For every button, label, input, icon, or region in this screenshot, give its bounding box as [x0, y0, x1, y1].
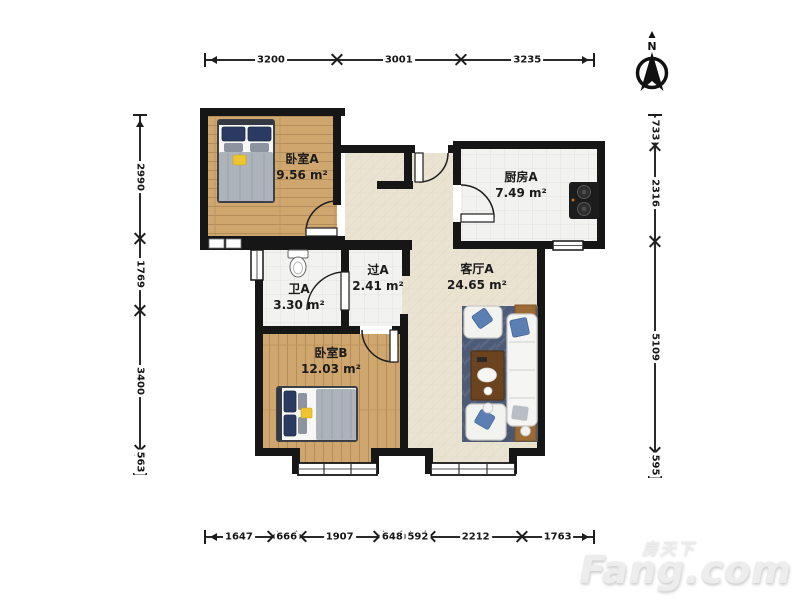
- wall: [255, 326, 360, 334]
- room-label-bedroom-b: 卧室B 12.03 m²: [301, 345, 361, 377]
- room-name: 卧室B: [301, 345, 361, 361]
- dim-arrow: [582, 56, 593, 64]
- dimension-left: 299017693400563: [131, 115, 149, 474]
- wall: [400, 314, 408, 456]
- room-name: 过A: [352, 262, 404, 278]
- window-bedroom-b-bay: [298, 463, 377, 475]
- wall: [377, 181, 413, 189]
- dim-label: 1763: [542, 531, 574, 542]
- wall: [341, 310, 349, 326]
- wall: [200, 108, 208, 250]
- dim-label: 592: [405, 531, 430, 542]
- wall: [333, 108, 341, 205]
- wall: [537, 241, 545, 456]
- room-area: 24.65 m²: [447, 277, 507, 293]
- window-bath: [251, 250, 263, 280]
- fang-logo: Fang.com: [580, 550, 792, 590]
- floorplan-svg: N: [0, 0, 800, 600]
- dim-label: 3400: [134, 365, 145, 397]
- dim-label: 666: [274, 531, 299, 542]
- north-label: N: [647, 40, 656, 53]
- wall: [341, 240, 412, 250]
- dimension-right: 73323165109595: [646, 115, 664, 477]
- wall: [583, 241, 605, 249]
- room-area: 12.03 m²: [301, 361, 361, 377]
- dim-label: 3235: [511, 54, 543, 65]
- dim-arrow: [206, 56, 217, 64]
- stove: [569, 182, 599, 219]
- wall: [453, 149, 461, 185]
- wall: [341, 250, 349, 274]
- bed-a: [218, 120, 274, 202]
- wall: [341, 145, 415, 153]
- wall: [200, 108, 345, 116]
- room-label-hall-a: 过A 2.41 m²: [352, 262, 404, 294]
- dim-label: 2212: [460, 531, 492, 542]
- dimension-bottom: 1647666190764859222121763: [205, 528, 594, 546]
- dim-line: [654, 115, 656, 477]
- sofa-set: [462, 305, 538, 442]
- dim-label: 3200: [255, 54, 287, 65]
- dim-endbar: [593, 53, 595, 67]
- room-area: 2.41 m²: [352, 278, 404, 294]
- floorplan-canvas: N 卧室A 9.56 m² 厨房A 7.49 m² 过A 2.41 m² 卫A …: [0, 0, 800, 600]
- dim-label: 1907: [324, 531, 356, 542]
- room-area: 7.49 m²: [495, 185, 547, 201]
- dim-arrow: [136, 116, 144, 127]
- room-name: 卫A: [273, 281, 325, 297]
- dim-label: 1647: [223, 531, 255, 542]
- floor-entry: [345, 153, 453, 242]
- window-living-bay: [431, 463, 515, 475]
- dim-label: 648: [380, 531, 405, 542]
- room-label-bath-a: 卫A 3.30 m²: [273, 281, 325, 313]
- wall: [453, 141, 605, 149]
- north-compass: N: [638, 31, 667, 91]
- room-area: 3.30 m²: [273, 297, 325, 313]
- dim-label: 1769: [134, 259, 145, 291]
- room-area: 9.56 m²: [276, 167, 328, 183]
- fang-watermark: 房天下 Fang.com: [580, 535, 792, 590]
- dim-label: 2990: [134, 161, 145, 193]
- room-name: 客厅A: [447, 261, 507, 277]
- bed-b: [277, 387, 357, 441]
- window-kitchen: [553, 241, 583, 250]
- toilet: [288, 250, 308, 277]
- dim-label: 2316: [649, 177, 660, 209]
- dim-arrow: [206, 533, 217, 541]
- room-name: 厨房A: [495, 169, 547, 185]
- dimension-top: 320030013235: [205, 51, 594, 69]
- dim-label: 733: [649, 118, 660, 143]
- dim-label: 563: [134, 450, 145, 475]
- room-label-living-a: 客厅A 24.65 m²: [447, 261, 507, 293]
- room-name: 卧室A: [276, 151, 328, 167]
- dim-label: 595: [649, 452, 660, 477]
- dim-label: 3001: [383, 54, 415, 65]
- room-label-kitchen-a: 厨房A 7.49 m²: [495, 169, 547, 201]
- room-label-bedroom-a: 卧室A 9.56 m²: [276, 151, 328, 183]
- dim-label: 5109: [649, 331, 660, 363]
